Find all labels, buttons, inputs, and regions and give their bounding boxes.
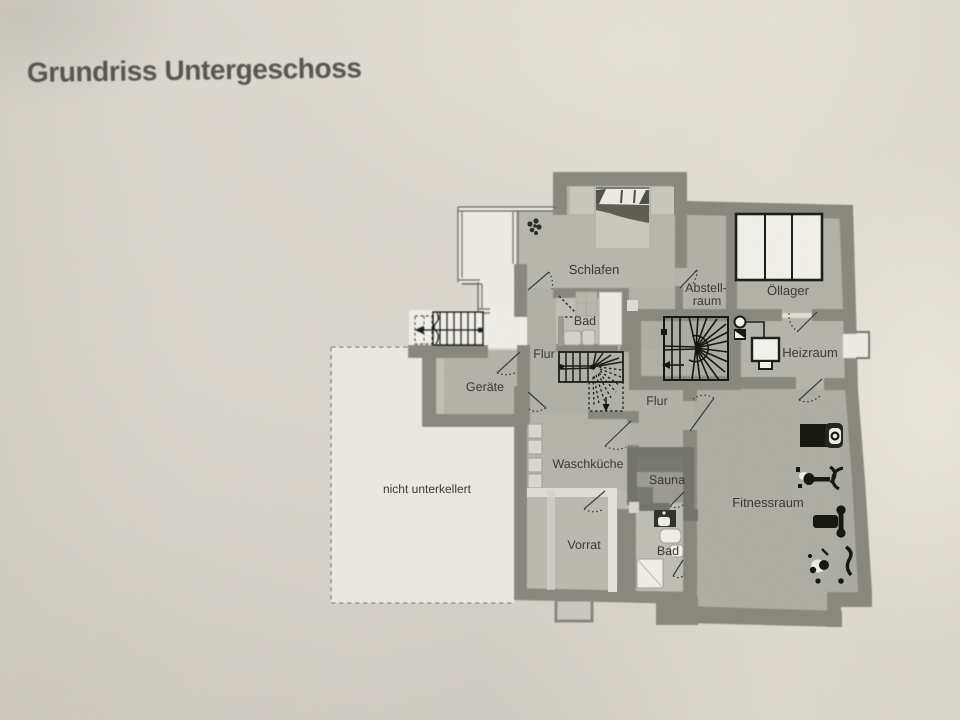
svg-text:Grundriss Untergeschoss: Grundriss Untergeschoss <box>27 52 362 88</box>
svg-text:raum: raum <box>693 294 721 308</box>
svg-text:Öllager: Öllager <box>767 283 810 298</box>
svg-text:Bad: Bad <box>657 544 679 558</box>
svg-text:Geräte: Geräte <box>466 380 504 394</box>
svg-text:Bad: Bad <box>574 314 596 328</box>
svg-text:Vorrat: Vorrat <box>567 538 601 552</box>
svg-text:Sauna: Sauna <box>649 473 685 487</box>
svg-text:Heizraum: Heizraum <box>782 345 838 360</box>
svg-text:Flur: Flur <box>533 347 555 361</box>
svg-text:Abstell-: Abstell- <box>685 281 727 295</box>
svg-text:Waschküche: Waschküche <box>552 457 623 471</box>
svg-text:Flur: Flur <box>646 394 668 408</box>
svg-text:Schlafen: Schlafen <box>569 262 620 277</box>
svg-text:Fitnessraum: Fitnessraum <box>732 495 804 510</box>
svg-text:nicht unterkellert: nicht unterkellert <box>383 482 472 496</box>
